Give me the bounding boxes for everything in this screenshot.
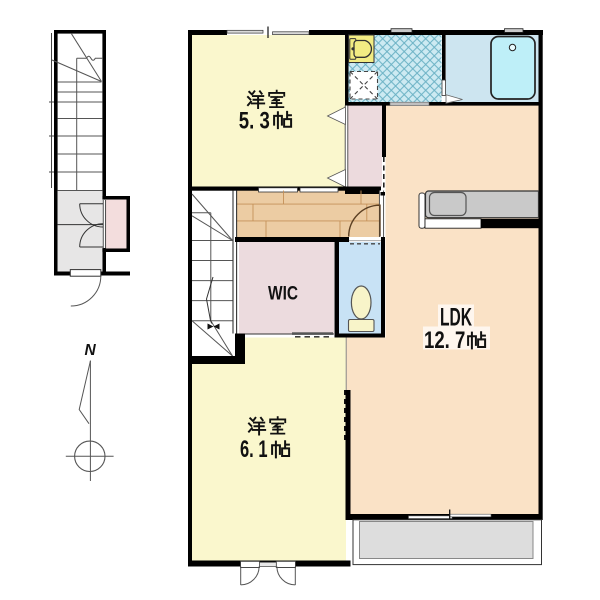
svg-text:WIC: WIC (268, 283, 298, 304)
svg-text:5. 3: 5. 3 (239, 108, 270, 135)
svg-text:6. 1: 6. 1 (240, 436, 268, 463)
svg-text:N: N (85, 342, 97, 359)
svg-text:12. 7: 12. 7 (424, 327, 465, 354)
